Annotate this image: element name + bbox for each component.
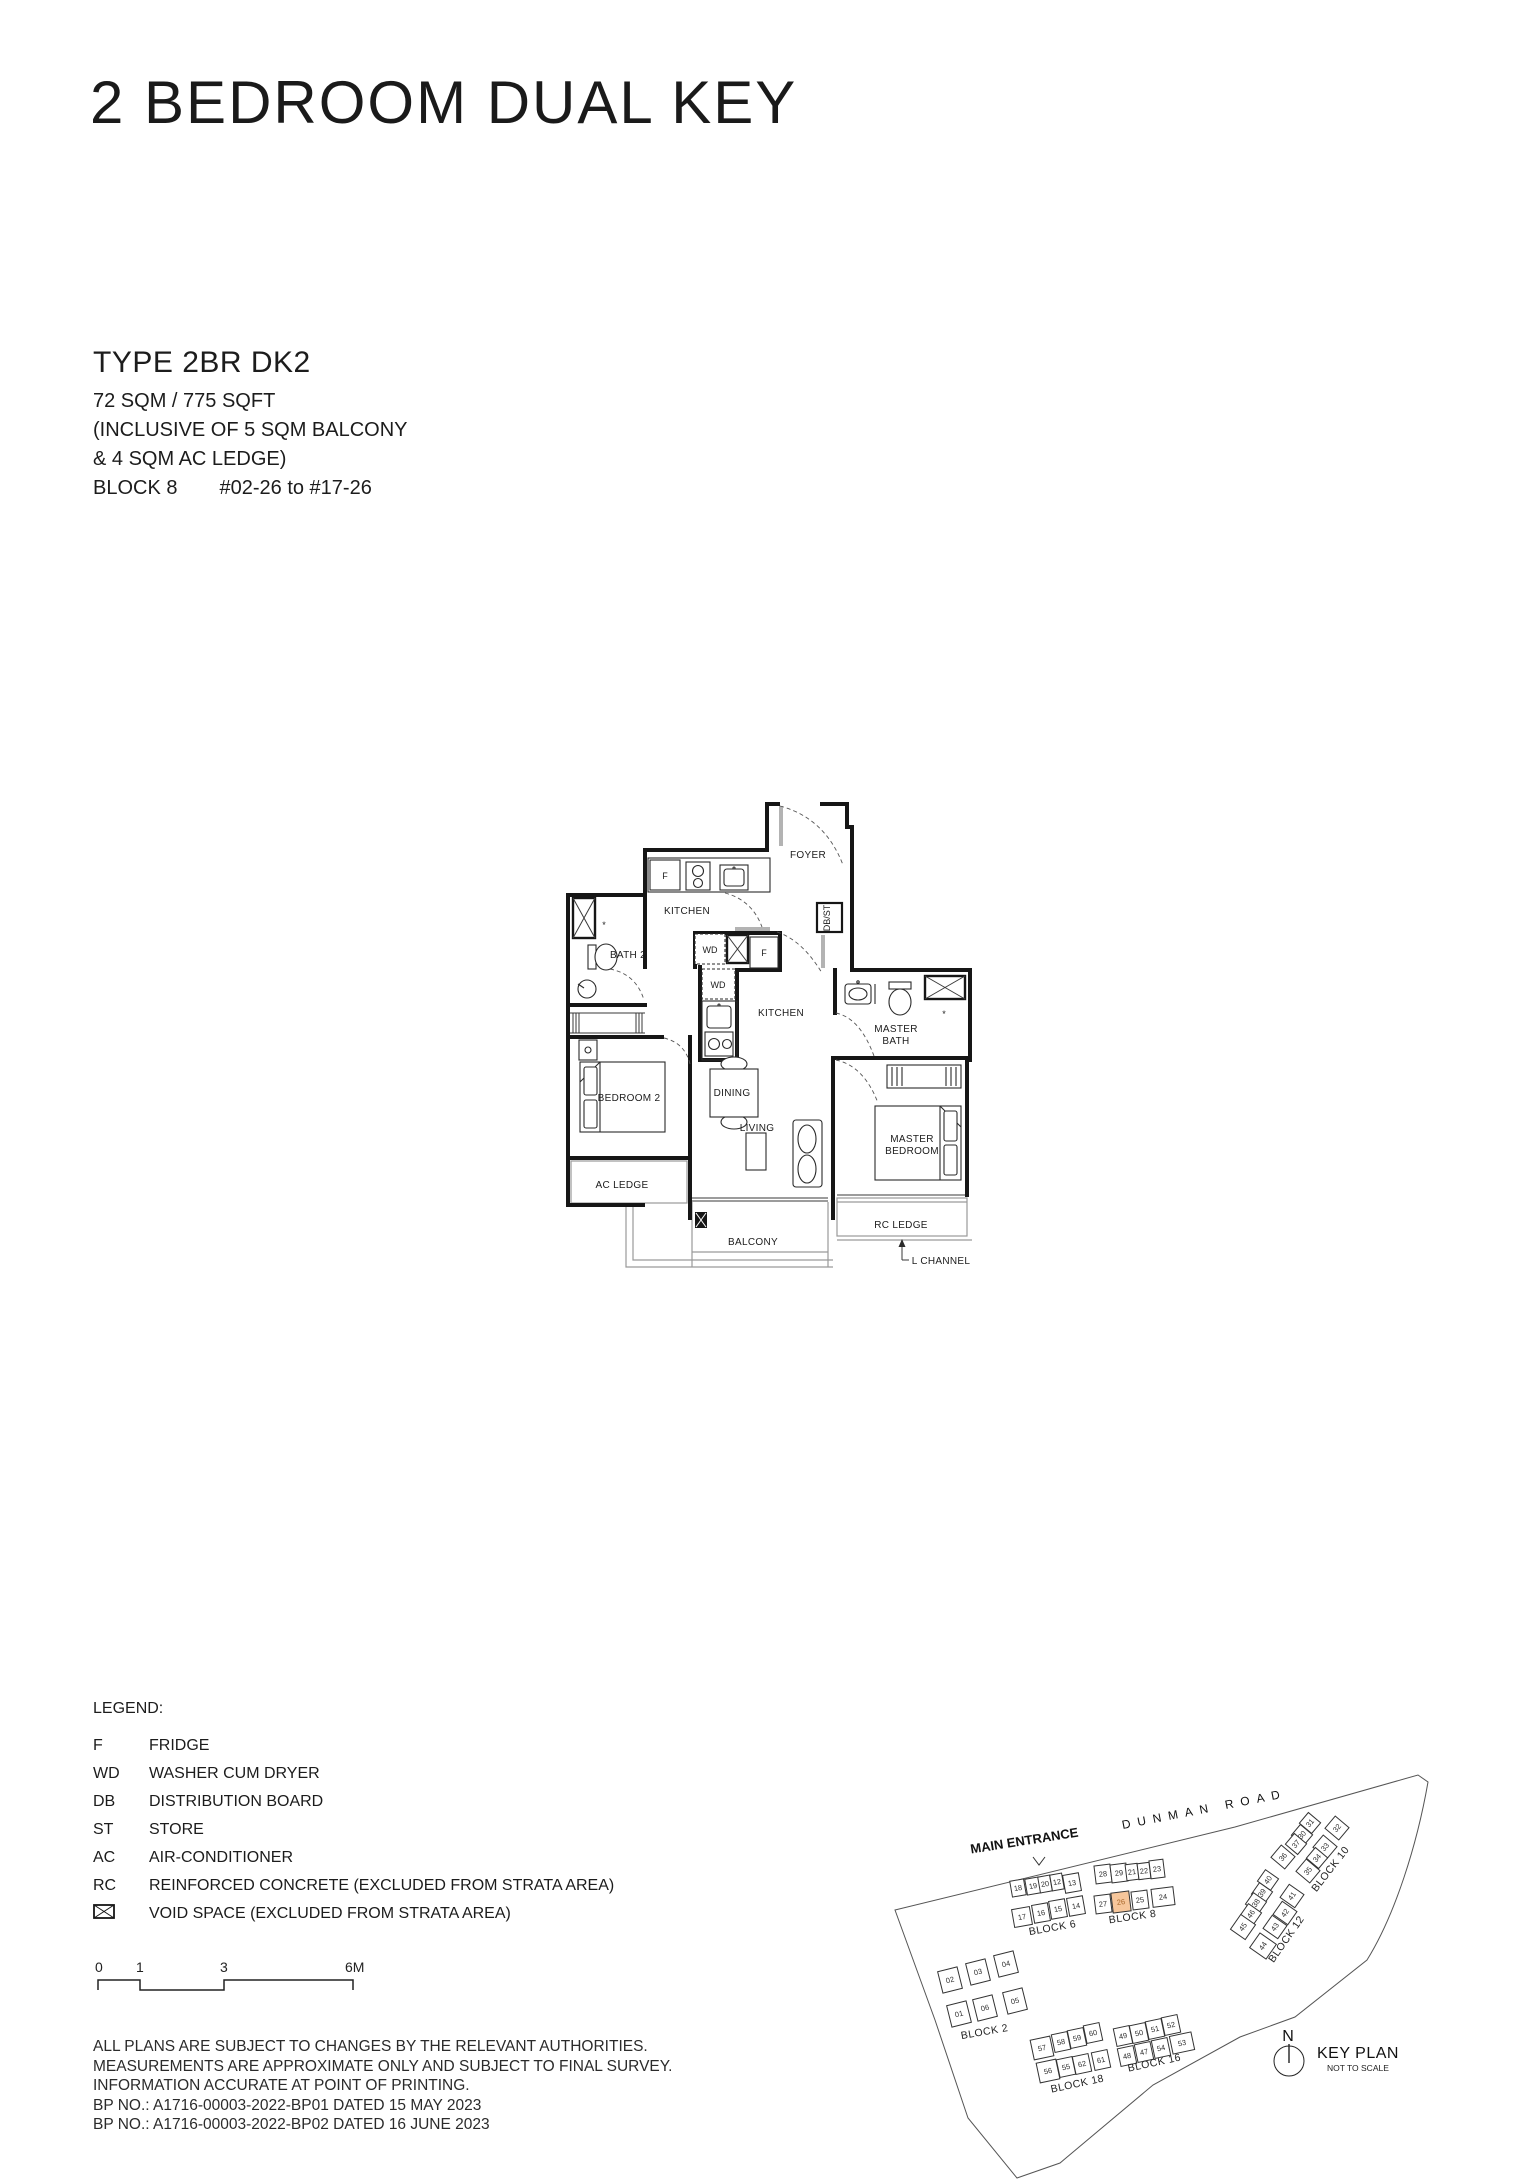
svg-text:17: 17 [1017,1912,1027,1922]
keyplan-unit: 32 [1325,1816,1349,1840]
page-title: 2 BEDROOM DUAL KEY [90,68,797,137]
master-wardrobe [887,1065,961,1088]
legend-desc: DISTRIBUTION BOARD [149,1793,323,1811]
washer2-label: WD [711,980,726,990]
svg-text:14: 14 [1071,1901,1081,1911]
svg-text:13: 13 [1067,1878,1077,1888]
l-channel-callout: L CHANNEL [899,1239,971,1267]
unit-inclusive-2: & 4 SQM AC LEDGE) [93,445,408,474]
legend-abbr: ST [93,1821,149,1839]
room-labels: FOYER KITCHEN BATH 2 KITCHEN MASTER BATH… [596,850,939,1248]
block-10: 31 32 30 37 33 36 34 35 BLOCK 10 [1271,1812,1352,1894]
svg-text:16: 16 [1036,1908,1046,1918]
master-bedroom-label-2: BEDROOM [885,1146,939,1157]
keyplan-unit: 01 [947,2001,972,2027]
legend-row-ac: AC AIR-CONDITIONER [93,1844,614,1872]
disclaimer-line-1: ALL PLANS ARE SUBJECT TO CHANGES BY THE … [93,2037,672,2057]
legend-abbr: AC [93,1849,149,1867]
svg-text:18: 18 [1013,1883,1023,1893]
keyplan-unit: 59 [1067,2028,1086,2049]
keyplan-unit: 57 [1030,2036,1054,2060]
block-18: 57 58 59 60 56 55 62 61 BLOCK 18 [1030,2023,1111,2096]
keyplan-unit: 22 [1137,1862,1151,1879]
svg-text:12: 12 [1052,1877,1062,1887]
dining-label: DINING [714,1088,751,1099]
unit-type: TYPE 2BR DK2 [93,346,408,380]
keyplan-unit: 27 [1094,1894,1112,1914]
living-dining-furniture [710,1057,822,1187]
disclaimer-line-2: MEASUREMENTS ARE APPROXIMATE ONLY AND SU… [93,2057,672,2077]
scale-6m: 6M [345,1959,364,1975]
svg-text:15: 15 [1053,1904,1063,1914]
keyplan-unit: 56 [1036,2059,1060,2083]
legend-title: LEGEND: [93,1700,614,1718]
scale-bar-drawing: 0 1 3 6M [93,1958,383,2000]
keyplan-unit: 60 [1083,2023,1102,2044]
scale-bar: 0 1 3 6M [93,1958,383,2005]
disclaimer-line-4: BP NO.: A1716-00003-2022-BP01 DATED 15 M… [93,2096,672,2116]
floorplan-page: 2 BEDROOM DUAL KEY TYPE 2BR DK2 72 SQM /… [0,0,1530,2182]
legend-row-fridge: F FRIDGE [93,1732,614,1760]
unit-stack-range: #02-26 to #17-26 [219,477,371,499]
ac-mark-2: * [942,1009,946,1019]
l-channel-label: L CHANNEL [912,1256,971,1267]
legend-abbr: DB [93,1793,149,1811]
scale-3: 3 [220,1959,228,1975]
legend-abbr-void [93,1904,149,1924]
db-st-label: DB/ST [822,904,832,931]
master-bath-fixtures: * [845,976,965,1019]
road-label: DUNMAN ROAD [1121,1786,1288,1832]
legend-desc: VOID SPACE (EXCLUDED FROM STRATA AREA) [149,1905,511,1923]
living-label: LIVING [740,1123,775,1134]
bedroom2-label: BEDROOM 2 [598,1093,661,1104]
master-bath-label-1: MASTER [874,1024,917,1035]
unit-area: 72 SQM / 775 SQFT [93,387,408,416]
disclaimer-line-3: INFORMATION ACCURATE AT POINT OF PRINTIN… [93,2076,672,2096]
keyplan-unit: 25 [1131,1890,1149,1910]
svg-text:26: 26 [1116,1897,1125,1907]
legend-row-store: ST STORE [93,1816,614,1844]
keyplan-unit: 17 [1012,1907,1033,1928]
kitchen-main-label: KITCHEN [758,1008,804,1019]
legend: LEGEND: F FRIDGE WD WASHER CUM DRYER DB … [93,1700,614,1928]
keyplan-unit: 16 [1032,1903,1051,1924]
keyplan-unit: 28 [1094,1864,1112,1884]
block-6: 18 19 20 12 13 17 16 15 14 BLOCK 6 [1010,1873,1086,1938]
scale-0: 0 [95,1959,103,1975]
keyplan-unit: 24 [1151,1887,1175,1908]
disclaimer: ALL PLANS ARE SUBJECT TO CHANGES BY THE … [93,2037,672,2135]
block-8: 28 29 21 22 23 27 26 25 24 BLOCK 8 [1094,1859,1175,1926]
svg-text:25: 25 [1135,1895,1144,1905]
master-bedroom-label-1: MASTER [890,1134,933,1145]
keyplan-unit: 62 [1072,2054,1091,2075]
entrance-arrow [1033,1857,1045,1865]
keyplan-unit: 03 [966,1959,991,1985]
svg-text:24: 24 [1158,1892,1167,1902]
svg-text:29: 29 [1114,1868,1123,1878]
legend-desc: WASHER CUM DRYER [149,1765,320,1783]
keyplan-unit: 52 [1161,2015,1180,2036]
key-plan: MAIN ENTRANCE DUNMAN ROAD 18 19 20 12 13… [875,1765,1530,2182]
master-bath-label-2: BATH [882,1036,909,1047]
keyplan-unit: 15 [1049,1899,1068,1920]
legend-desc: FRIDGE [149,1737,209,1755]
key-plan-drawing: MAIN ENTRANCE DUNMAN ROAD 18 19 20 12 13… [875,1765,1530,2182]
fridge2-label: F [761,948,767,958]
main-entrance-label: MAIN ENTRANCE [969,1825,1079,1857]
keyplan-unit: 02 [938,1967,963,1993]
unit-block: BLOCK 8 [93,477,177,499]
foyer-label: FOYER [790,850,826,861]
legend-desc: AIR-CONDITIONER [149,1849,293,1867]
ac-mark: * [602,920,606,930]
balcony-label: BALCONY [728,1237,778,1248]
keyplan-unit: 06 [973,1995,998,2021]
keyplan-unit: 04 [994,1951,1019,1977]
kitchen-upper-label: KITCHEN [664,906,710,917]
washer-label: WD [703,945,718,955]
void-space-icon [93,1904,115,1919]
north-compass: N [1274,2028,1304,2076]
legend-row-db: DB DISTRIBUTION BOARD [93,1788,614,1816]
legend-abbr: RC [93,1877,149,1895]
north-label: N [1282,2028,1294,2045]
unit-info: TYPE 2BR DK2 72 SQM / 775 SQFT (INCLUSIV… [93,346,408,503]
db-st-closet: DB/ST [817,903,842,932]
svg-text:21: 21 [1127,1867,1136,1877]
keyplan-unit: 05 [1003,1988,1028,2014]
keyplan-unit: 61 [1091,2050,1110,2071]
floor-plan-drawing: DB/ST F [540,770,1040,1330]
key-plan-subtitle: NOT TO SCALE [1327,2063,1389,2073]
kitchen-counter-top: F [648,858,770,892]
rc-ledge-label: RC LEDGE [874,1220,928,1231]
svg-text:19: 19 [1028,1881,1038,1891]
block-2-label: BLOCK 2 [960,2022,1009,2042]
legend-abbr: F [93,1737,149,1755]
keyplan-unit: 13 [1063,1873,1082,1894]
floor-plan: DB/ST F [540,770,1040,1330]
bath2-label: BATH 2 [610,950,646,961]
block-16: 49 50 51 52 48 47 54 53 BLOCK 16 [1113,2015,1194,2075]
block-2: 02 03 04 01 06 05 BLOCK 2 [938,1951,1028,2042]
legend-desc: STORE [149,1821,204,1839]
scale-1: 1 [136,1959,144,1975]
balcony-drain [695,1212,707,1228]
fridge-label: F [662,871,668,881]
svg-text:28: 28 [1098,1869,1107,1879]
block-12: 40 39 41 38 42 46 43 45 44 BLOCK 12 [1230,1870,1307,1965]
svg-text:20: 20 [1040,1879,1050,1889]
unit-block-line: BLOCK 8#02-26 to #17-26 [93,474,408,503]
keyplan-unit: 14 [1067,1896,1086,1917]
svg-text:23: 23 [1152,1864,1161,1874]
key-plan-title: KEY PLAN [1317,2045,1399,2062]
svg-text:22: 22 [1139,1866,1148,1876]
bedroom2-furniture [579,1040,665,1132]
unit-inclusive-1: (INCLUSIVE OF 5 SQM BALCONY [93,416,408,445]
legend-row-void: VOID SPACE (EXCLUDED FROM STRATA AREA) [93,1900,614,1928]
ac-ledge-label: AC LEDGE [596,1180,649,1191]
svg-text:27: 27 [1098,1899,1107,1909]
legend-abbr: WD [93,1765,149,1783]
keyplan-unit: 23 [1149,1859,1165,1879]
keyplan-unit: 18 [1010,1879,1027,1897]
legend-desc: REINFORCED CONCRETE (EXCLUDED FROM STRAT… [149,1877,614,1895]
disclaimer-line-5: BP NO.: A1716-00003-2022-BP02 DATED 16 J… [93,2115,672,2135]
keyplan-unit-highlighted: 26 [1111,1891,1131,1913]
keyplan-unit: 53 [1169,2032,1194,2054]
legend-row-washer: WD WASHER CUM DRYER [93,1760,614,1788]
legend-row-rc: RC REINFORCED CONCRETE (EXCLUDED FROM ST… [93,1872,614,1900]
bath2-fixtures: * [570,898,645,1033]
